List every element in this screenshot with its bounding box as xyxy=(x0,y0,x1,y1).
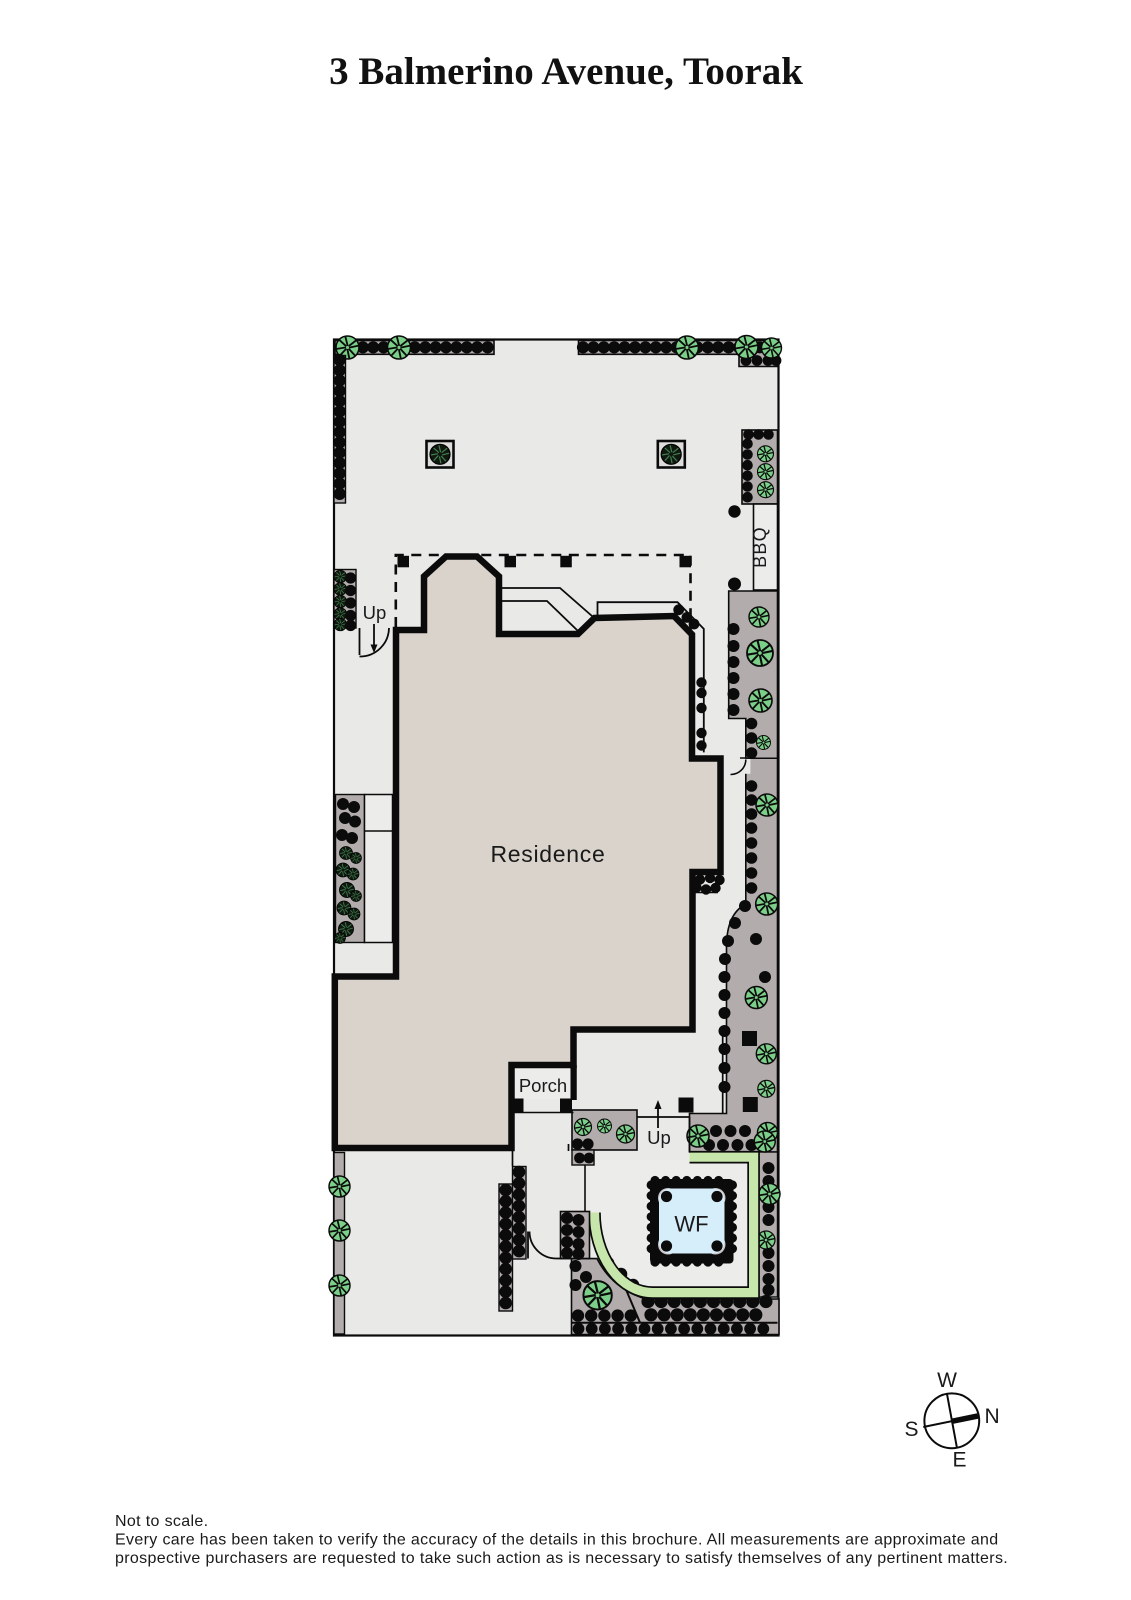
svg-text:BBQ: BBQ xyxy=(750,526,770,568)
svg-text:Porch: Porch xyxy=(519,1075,567,1096)
svg-text:Up: Up xyxy=(647,1127,671,1148)
svg-text:Every care has been taken to v: Every care has been taken to verify the … xyxy=(115,1532,999,1549)
svg-text:WF: WF xyxy=(674,1212,708,1237)
svg-text:prospective purchasers are req: prospective purchasers are requested to … xyxy=(115,1550,1008,1567)
svg-text:Up: Up xyxy=(363,602,387,623)
svg-text:N: N xyxy=(985,1405,1000,1428)
svg-text:Not to scale.: Not to scale. xyxy=(115,1513,208,1530)
svg-text:S: S xyxy=(904,1418,918,1441)
svg-text:W: W xyxy=(937,1369,957,1392)
svg-text:E: E xyxy=(952,1449,966,1472)
svg-text:3 Balmerino Avenue, Toorak: 3 Balmerino Avenue, Toorak xyxy=(329,50,803,93)
svg-text:Residence: Residence xyxy=(491,841,606,867)
